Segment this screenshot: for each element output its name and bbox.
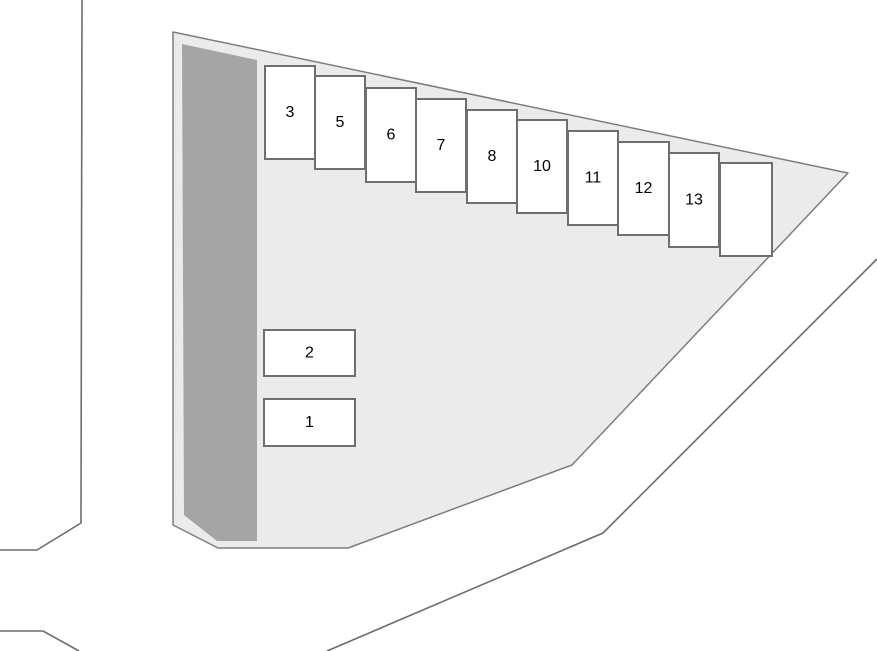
parking-stall-11[interactable]: 11: [568, 131, 618, 225]
building-strip: [182, 44, 257, 541]
parking-stall-12[interactable]: 12: [618, 142, 669, 235]
site-plan-canvas: 356781011121321: [0, 0, 877, 651]
parking-stall-7[interactable]: 7: [416, 99, 466, 192]
parking-stall-8[interactable]: 8: [467, 110, 517, 203]
parking-stall-label: 3: [286, 104, 295, 121]
parking-stall-6[interactable]: 6: [366, 88, 416, 182]
parking-stall-label: 13: [685, 192, 703, 209]
parking-stall-5[interactable]: 5: [315, 76, 365, 169]
parking-stall-13[interactable]: 13: [669, 153, 719, 247]
parking-stall-label: 2: [305, 345, 314, 362]
parking-stall-label: 5: [336, 114, 345, 131]
parking-stall-label: 8: [488, 148, 497, 165]
parking-stall-2[interactable]: 2: [264, 330, 355, 376]
parking-stall-label: 7: [437, 137, 446, 154]
parking-stall-label: 6: [387, 127, 396, 144]
parking-stall-unlabeled[interactable]: [720, 163, 772, 256]
bottom-left-road-edge: [0, 631, 79, 651]
parking-stall-1[interactable]: 1: [264, 399, 355, 446]
parking-stall-3[interactable]: 3: [265, 66, 315, 159]
parking-stall-rect[interactable]: [720, 163, 772, 256]
site-plan: 356781011121321: [0, 0, 877, 651]
parking-stall-label: 11: [585, 170, 602, 187]
parking-stall-label: 10: [533, 158, 551, 175]
left-road-edge: [0, 0, 82, 550]
parking-stall-label: 12: [635, 180, 653, 197]
parking-stall-10[interactable]: 10: [517, 120, 567, 213]
parking-stall-label: 1: [305, 414, 314, 431]
